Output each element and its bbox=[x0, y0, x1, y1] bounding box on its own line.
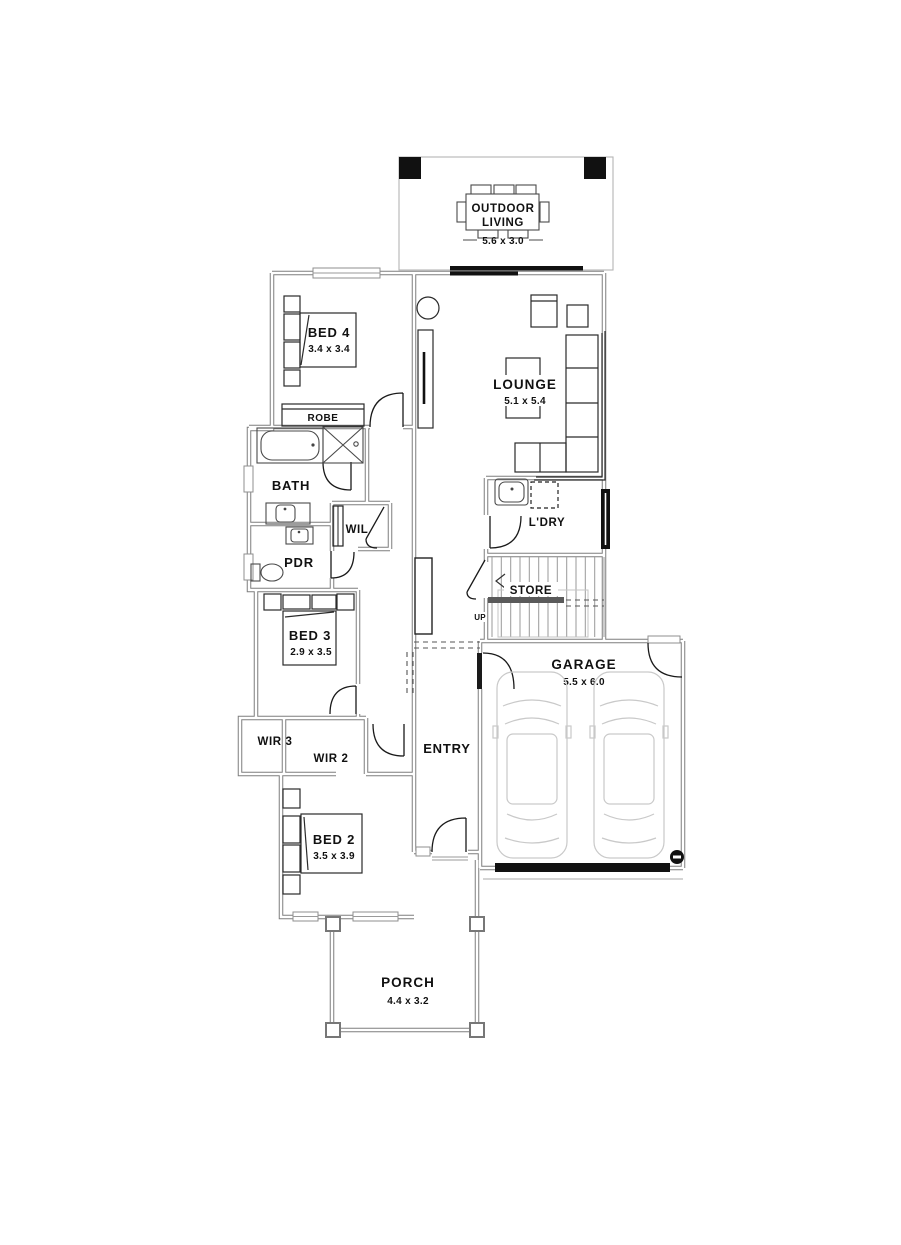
entry-label: ENTRY bbox=[423, 741, 471, 756]
bath-door-arc bbox=[323, 462, 351, 490]
staircase: STORE UP bbox=[472, 557, 604, 637]
bed2-room: BED 2 3.5 x 3.9 bbox=[283, 789, 362, 894]
outdoor-living-area: OUTDOOR LIVING 5.6 x 3.0 bbox=[399, 157, 613, 270]
stair-rail bbox=[488, 597, 564, 603]
entry-threshold bbox=[432, 857, 468, 860]
wir3-label: WIR 3 bbox=[258, 736, 293, 748]
armchair-icon bbox=[531, 295, 557, 327]
lounge-furniture: LOUNGE 5.1 x 5.4 bbox=[417, 295, 605, 480]
garage-label: GARAGE bbox=[551, 657, 616, 672]
bed2-dims: 3.5 x 3.9 bbox=[313, 851, 355, 862]
robe-label: ROBE bbox=[308, 413, 339, 424]
outdoor-living-label-line2: LIVING bbox=[482, 217, 524, 229]
lounge-label: LOUNGE bbox=[493, 377, 557, 392]
garage-entry-door-arc bbox=[483, 653, 514, 689]
shower-cross bbox=[323, 427, 363, 463]
garage-room: GARAGE 5.5 x 6.0 bbox=[493, 657, 684, 864]
porch-post-icon bbox=[326, 917, 340, 931]
bed-icon bbox=[284, 296, 356, 386]
vanity-tap bbox=[284, 508, 287, 511]
garage-panel-door bbox=[495, 863, 670, 872]
garage-dims: 5.5 x 6.0 bbox=[563, 677, 605, 688]
post-icon bbox=[584, 157, 606, 179]
laundry-trough-icon bbox=[495, 479, 528, 505]
laundry-fixtures: L'DRY bbox=[495, 479, 565, 529]
sliding-stacker-door-panel bbox=[450, 272, 518, 276]
post-icon bbox=[399, 157, 421, 179]
garage-external-door-leaf bbox=[648, 636, 680, 643]
pdr-door-arc bbox=[331, 551, 354, 578]
bed3-door-arc bbox=[330, 686, 356, 714]
bed4-label: BED 4 bbox=[308, 325, 350, 340]
porch-post-icon bbox=[326, 1023, 340, 1037]
bed4-dims: 3.4 x 3.4 bbox=[308, 344, 350, 355]
front-entry-door-arc bbox=[432, 818, 466, 852]
car-icon bbox=[493, 672, 571, 858]
lounge-dims: 5.1 x 5.4 bbox=[504, 396, 546, 407]
stairs-up-label: UP bbox=[474, 613, 486, 622]
bed4-door-arc bbox=[370, 393, 403, 427]
car-icon bbox=[590, 672, 668, 858]
garage-external-door-arc bbox=[648, 643, 682, 677]
outdoor-living-dims: 5.6 x 3.0 bbox=[482, 236, 524, 247]
trough-tap bbox=[511, 488, 514, 491]
trough-basin bbox=[499, 482, 524, 502]
porch-area: PORCH 4.4 x 3.2 bbox=[326, 917, 484, 1037]
doors bbox=[323, 393, 682, 860]
sofa-cushion-lines bbox=[566, 368, 598, 437]
bathtub-inner bbox=[261, 431, 319, 460]
store-label: STORE bbox=[510, 585, 552, 597]
windows bbox=[244, 266, 683, 921]
porch-post-icon bbox=[470, 1023, 484, 1037]
bathtub-tap bbox=[311, 443, 314, 446]
pdr-tap bbox=[298, 531, 301, 534]
hot-water-symbol-mark bbox=[673, 856, 681, 859]
dashed-bulkhead-lines bbox=[407, 642, 480, 694]
outdoor-living-label-line1: OUTDOOR bbox=[472, 203, 535, 215]
wil-label: WIL bbox=[346, 524, 369, 536]
porch-dims: 4.4 x 3.2 bbox=[387, 996, 429, 1007]
hall-cupboard-icon bbox=[415, 558, 432, 634]
wir2-label: WIR 2 bbox=[314, 753, 349, 765]
wil-door bbox=[366, 507, 384, 548]
bed4-room: BED 4 3.4 x 3.4 ROBE bbox=[282, 296, 364, 426]
porch-label: PORCH bbox=[381, 975, 435, 990]
sliding-stacker-door bbox=[450, 266, 583, 271]
floor-plan-page: OUTDOOR LIVING 5.6 x 3.0 bbox=[0, 0, 901, 1245]
bath-label: BATH bbox=[272, 478, 310, 493]
store-door bbox=[467, 560, 485, 599]
bed3-room: BED 3 2.9 x 3.5 bbox=[264, 594, 354, 665]
laundry-door-arc bbox=[490, 516, 521, 548]
round-table-icon bbox=[417, 297, 439, 319]
laundry-label: L'DRY bbox=[529, 517, 566, 529]
bulkhead-dashed bbox=[407, 642, 480, 694]
bed2-label: BED 2 bbox=[313, 832, 355, 847]
bed3-dims: 2.9 x 3.5 bbox=[290, 647, 332, 658]
window bbox=[244, 554, 253, 580]
stair-direction-arrow bbox=[496, 574, 505, 588]
pdr-label: PDR bbox=[284, 555, 314, 570]
floor-plan-drawing: OUTDOOR LIVING 5.6 x 3.0 bbox=[0, 0, 901, 1245]
porch-post-icon bbox=[470, 917, 484, 931]
toilet-bowl bbox=[261, 564, 283, 581]
bed3-label: BED 3 bbox=[289, 628, 331, 643]
garage-entry-door-leaf bbox=[477, 653, 482, 689]
washer-space-dashed bbox=[531, 482, 558, 508]
entry-sidelight-window bbox=[416, 847, 430, 856]
wir-lobby-door-arc bbox=[373, 724, 404, 756]
window bbox=[244, 466, 253, 492]
bath-vanity-icon bbox=[266, 503, 310, 524]
side-table-icon bbox=[567, 305, 588, 327]
vanity-basin bbox=[276, 505, 295, 522]
tv-unit-icon bbox=[418, 330, 433, 428]
shower-rose bbox=[354, 442, 358, 446]
